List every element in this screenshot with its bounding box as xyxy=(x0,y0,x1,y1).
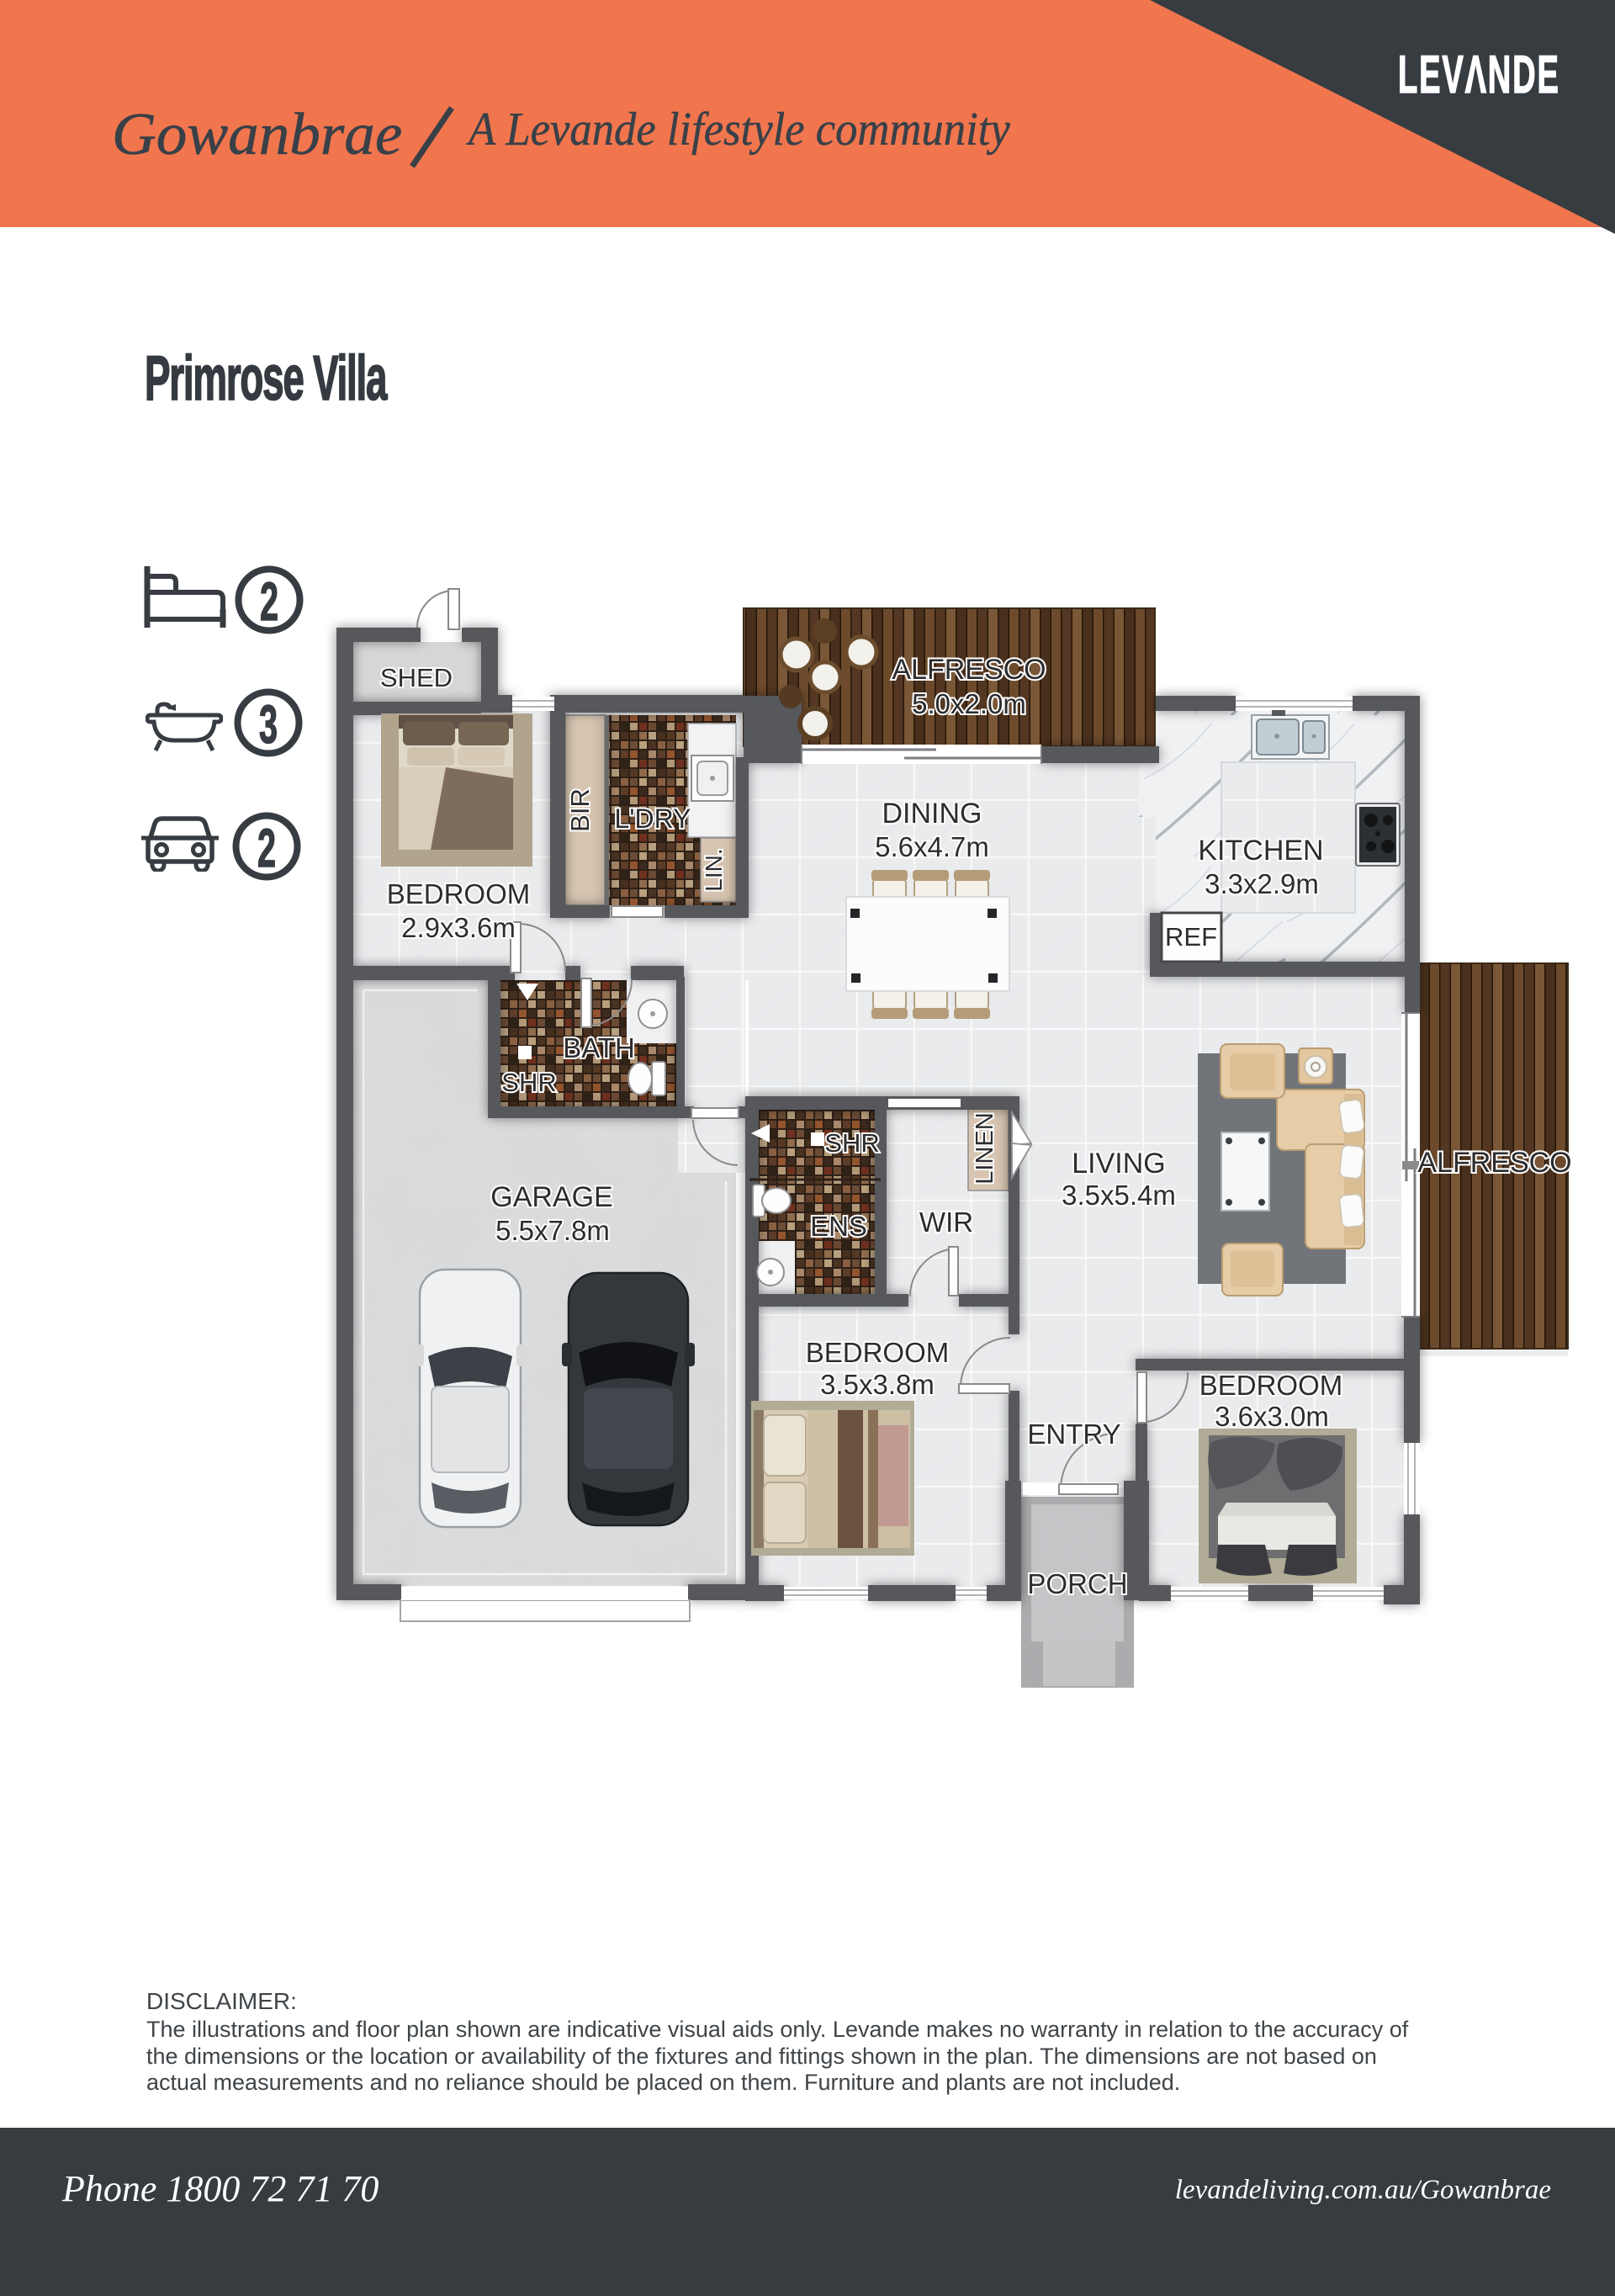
svg-text:BEDROOM: BEDROOM xyxy=(806,1337,950,1368)
svg-text:BATH: BATH xyxy=(563,1032,635,1063)
svg-text:L'DRY: L'DRY xyxy=(615,803,691,834)
svg-text:KITCHEN: KITCHEN xyxy=(1198,835,1323,867)
svg-text:3.6x3.0m: 3.6x3.0m xyxy=(1215,1401,1329,1432)
svg-text:BIR: BIR xyxy=(565,788,595,832)
svg-text:ENTRY: ENTRY xyxy=(1027,1418,1120,1450)
svg-text:REF: REF xyxy=(1165,922,1217,952)
svg-text:ALFRESCO: ALFRESCO xyxy=(1417,1147,1571,1179)
svg-text:3.5x3.8m: 3.5x3.8m xyxy=(820,1369,935,1400)
svg-text:WIR: WIR xyxy=(919,1206,973,1238)
svg-text:5.5x7.8m: 5.5x7.8m xyxy=(495,1215,610,1246)
svg-text:LIVING: LIVING xyxy=(1072,1148,1165,1180)
svg-text:SHR: SHR xyxy=(824,1128,879,1158)
svg-text:SHR: SHR xyxy=(501,1068,556,1097)
svg-text:3.3x2.9m: 3.3x2.9m xyxy=(1205,868,1319,899)
svg-text:GARAGE: GARAGE xyxy=(490,1181,612,1213)
svg-text:ALFRESCO: ALFRESCO xyxy=(892,654,1046,686)
svg-text:5.0x2.0m: 5.0x2.0m xyxy=(912,688,1026,719)
svg-text:ENS: ENS xyxy=(810,1211,867,1242)
svg-text:5.6x4.7m: 5.6x4.7m xyxy=(875,831,989,862)
svg-text:PORCH: PORCH xyxy=(1027,1568,1127,1599)
svg-text:LIN.: LIN. xyxy=(701,848,727,891)
svg-text:3.5x5.4m: 3.5x5.4m xyxy=(1062,1180,1176,1211)
svg-text:LINEN: LINEN xyxy=(972,1112,998,1184)
svg-text:2.9x3.6m: 2.9x3.6m xyxy=(401,912,516,943)
svg-text:BEDROOM: BEDROOM xyxy=(1199,1370,1343,1401)
svg-text:BEDROOM: BEDROOM xyxy=(387,878,531,909)
svg-text:DINING: DINING xyxy=(882,798,982,830)
svg-text:SHED: SHED xyxy=(380,663,453,692)
